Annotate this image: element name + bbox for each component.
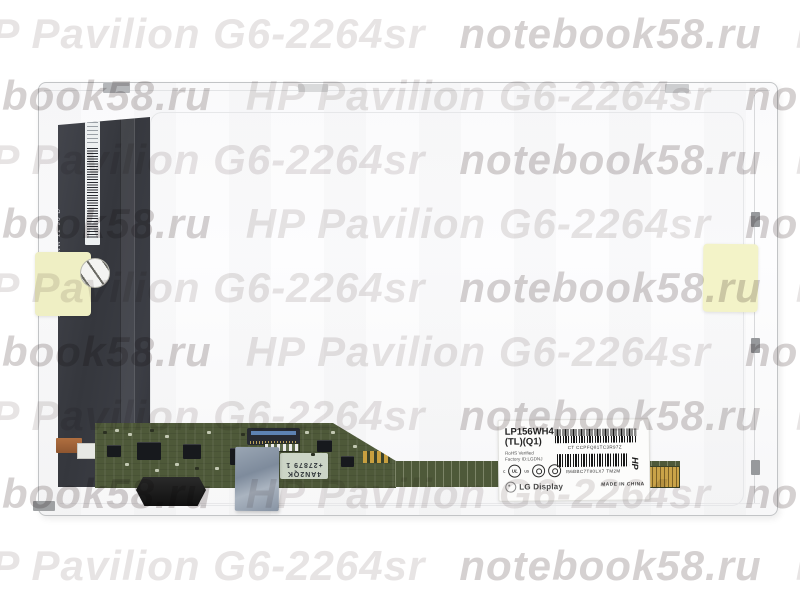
top-edge-tab xyxy=(298,84,328,92)
barcode-icon xyxy=(557,453,629,467)
lvds-slot xyxy=(251,431,296,435)
barcode-microtext xyxy=(87,122,98,144)
barcode-icon xyxy=(87,148,98,239)
lg-logo-icon xyxy=(505,482,516,493)
watermark-row: HP Pavilion G6-2264srnotebook58.ruHP Pav… xyxy=(0,8,800,60)
pcb-chip xyxy=(107,445,121,457)
watermark-text-hp: HP Pavilion G6-2264sr xyxy=(796,264,800,311)
barcode1-text: CT CCPFQ81TC3R97Z xyxy=(549,444,641,450)
product-photo-lcd-panel: 55508-29470.62 NW 11 90 D 4AN2QK +27879 … xyxy=(0,0,800,600)
pcb-component xyxy=(305,431,309,434)
pcb-component xyxy=(331,431,335,434)
pcb-chip xyxy=(137,442,161,460)
lg-brand-text: LG Display xyxy=(519,482,563,491)
lg-display-logo: LG Display xyxy=(505,481,563,493)
watermark-text-site: notebook58.ru xyxy=(459,542,795,589)
pcb-chip xyxy=(317,440,332,452)
frame-clip xyxy=(751,212,760,227)
barcode-icon xyxy=(555,428,637,443)
ul-suffix: us xyxy=(524,468,529,473)
yellow-sticker-right xyxy=(703,244,759,313)
mylar-flex xyxy=(235,447,279,511)
certification-marks: c UL us xyxy=(503,464,561,478)
made-in-text: MADE IN CHINA xyxy=(601,482,644,487)
panel-top-rim xyxy=(44,90,770,91)
pcb-sticker-line2: +27879 1 xyxy=(281,460,327,469)
barcode2-text: I56BBC7T80LX7 TM2M xyxy=(551,468,635,474)
pcb-sticker-line1: 4AN2QK xyxy=(281,469,327,478)
pcb-component xyxy=(311,453,315,456)
ul-prefix: c xyxy=(503,469,505,474)
top-edge-tab xyxy=(665,84,689,93)
rohs-text: RoHS Verified xyxy=(505,450,534,456)
pcb-component xyxy=(128,433,132,436)
watermark-text-hp: HP Pavilion G6-2264sr xyxy=(796,542,800,589)
watermark-text-site: notebook58.ru xyxy=(459,10,795,57)
pcb-component xyxy=(150,429,154,432)
gold-contacts xyxy=(648,466,680,488)
pcb-component xyxy=(155,469,159,472)
pcb-component xyxy=(175,463,179,466)
pcb-component xyxy=(215,467,219,470)
hp-logo: HP xyxy=(627,455,643,471)
cert-circle-icon xyxy=(532,464,545,477)
pcb-component xyxy=(353,445,357,448)
pcb-component xyxy=(115,429,119,432)
pcb-component xyxy=(165,435,169,438)
pcb-component xyxy=(195,467,199,470)
spec-label: LP156WH4 (TL)(Q1) RoHS Verified Factory … xyxy=(498,418,651,502)
top-edge-tab xyxy=(103,83,130,93)
pcb-component xyxy=(207,431,211,434)
label-model-suffix: (TL)(Q1) xyxy=(505,437,554,448)
board-connector xyxy=(136,477,206,506)
factory-text: Factory ID:LGDNJ xyxy=(505,456,543,462)
pcb-component xyxy=(103,431,107,434)
cert-circle-icon xyxy=(548,464,561,477)
flex-barcode-sticker xyxy=(85,118,100,245)
pcb-sticker: 4AN2QK +27879 1 xyxy=(280,453,328,479)
bottom-edge-tab xyxy=(33,501,55,511)
pcb-chip xyxy=(341,456,354,467)
yellow-sticker-left xyxy=(35,252,91,316)
watermark-text-hp: HP Pavilion G6-2264sr xyxy=(796,392,800,439)
frame-clip xyxy=(751,460,760,475)
pcb-chip xyxy=(183,444,201,459)
sticker-tab-circle xyxy=(80,258,110,288)
watermark-text-hp: HP Pavilion G6-2264sr xyxy=(796,10,800,57)
watermark-row: HP Pavilion G6-2264srnotebook58.ruHP Pav… xyxy=(0,540,800,592)
pcb-component xyxy=(241,433,245,436)
watermark-text-hp: HP Pavilion G6-2264sr xyxy=(0,542,459,589)
watermark-text-hp: HP Pavilion G6-2264sr xyxy=(796,136,800,183)
pcb-component xyxy=(125,463,129,466)
watermark-text-hp: HP Pavilion G6-2264sr xyxy=(0,10,459,57)
ul-logo-icon: UL xyxy=(508,465,521,478)
frame-clip xyxy=(751,338,760,353)
